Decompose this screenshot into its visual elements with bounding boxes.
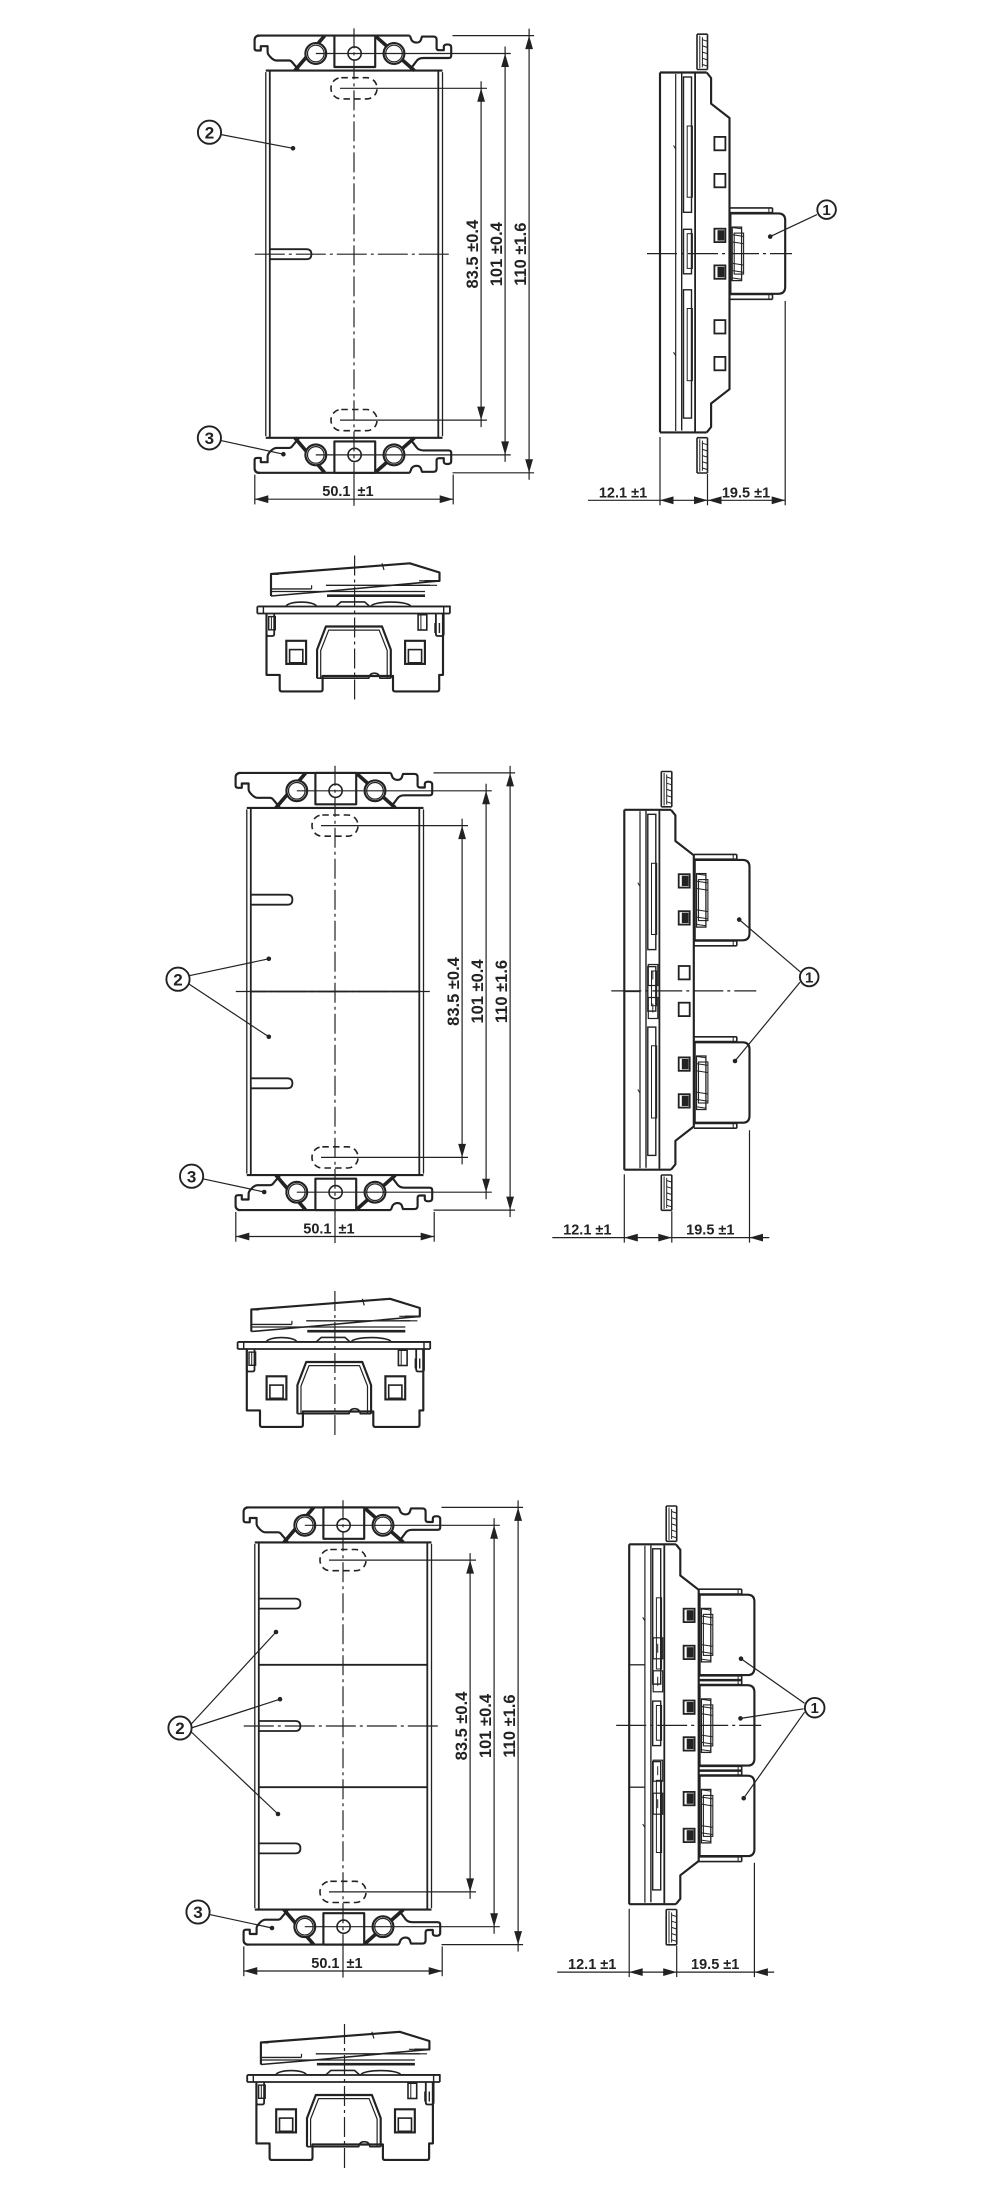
svg-text:101 ±0.4: 101 ±0.4 bbox=[469, 959, 487, 1024]
svg-text:2: 2 bbox=[205, 123, 214, 142]
svg-text:110 ±1.6: 110 ±1.6 bbox=[512, 223, 530, 286]
svg-text:12.1 ±1: 12.1 ±1 bbox=[563, 1223, 611, 1239]
svg-text:50.1: 50.1 bbox=[322, 484, 350, 500]
svg-text:12.1 ±1: 12.1 ±1 bbox=[599, 485, 647, 501]
svg-text:2: 2 bbox=[175, 1719, 184, 1738]
svg-text:12.1 ±1: 12.1 ±1 bbox=[568, 1957, 616, 1973]
svg-text:±1: ±1 bbox=[358, 484, 374, 500]
svg-text:50.1: 50.1 bbox=[303, 1222, 331, 1238]
svg-text:2: 2 bbox=[173, 970, 182, 989]
svg-text:±1: ±1 bbox=[347, 1956, 363, 1972]
svg-text:50.1: 50.1 bbox=[311, 1956, 339, 1972]
svg-text:83.5 ±0.4: 83.5 ±0.4 bbox=[464, 219, 482, 289]
svg-text:110 ±1.6: 110 ±1.6 bbox=[493, 960, 511, 1023]
svg-text:±1: ±1 bbox=[339, 1222, 355, 1238]
svg-text:1: 1 bbox=[805, 969, 813, 986]
svg-text:110 ±1.6: 110 ±1.6 bbox=[501, 1694, 519, 1757]
svg-text:101 ±0.4: 101 ±0.4 bbox=[477, 1693, 495, 1758]
svg-text:19.5 ±1: 19.5 ±1 bbox=[691, 1957, 739, 1973]
svg-text:101 ±0.4: 101 ±0.4 bbox=[488, 221, 506, 286]
svg-text:19.5 ±1: 19.5 ±1 bbox=[722, 485, 770, 501]
svg-text:3: 3 bbox=[205, 429, 214, 448]
svg-text:83.5 ±0.4: 83.5 ±0.4 bbox=[445, 956, 463, 1026]
svg-text:3: 3 bbox=[193, 1903, 202, 1922]
svg-text:83.5 ±0.4: 83.5 ±0.4 bbox=[453, 1691, 471, 1761]
svg-text:19.5 ±1: 19.5 ±1 bbox=[686, 1223, 734, 1239]
svg-text:3: 3 bbox=[187, 1167, 196, 1186]
svg-text:1: 1 bbox=[822, 202, 830, 219]
svg-text:1: 1 bbox=[811, 1700, 819, 1717]
